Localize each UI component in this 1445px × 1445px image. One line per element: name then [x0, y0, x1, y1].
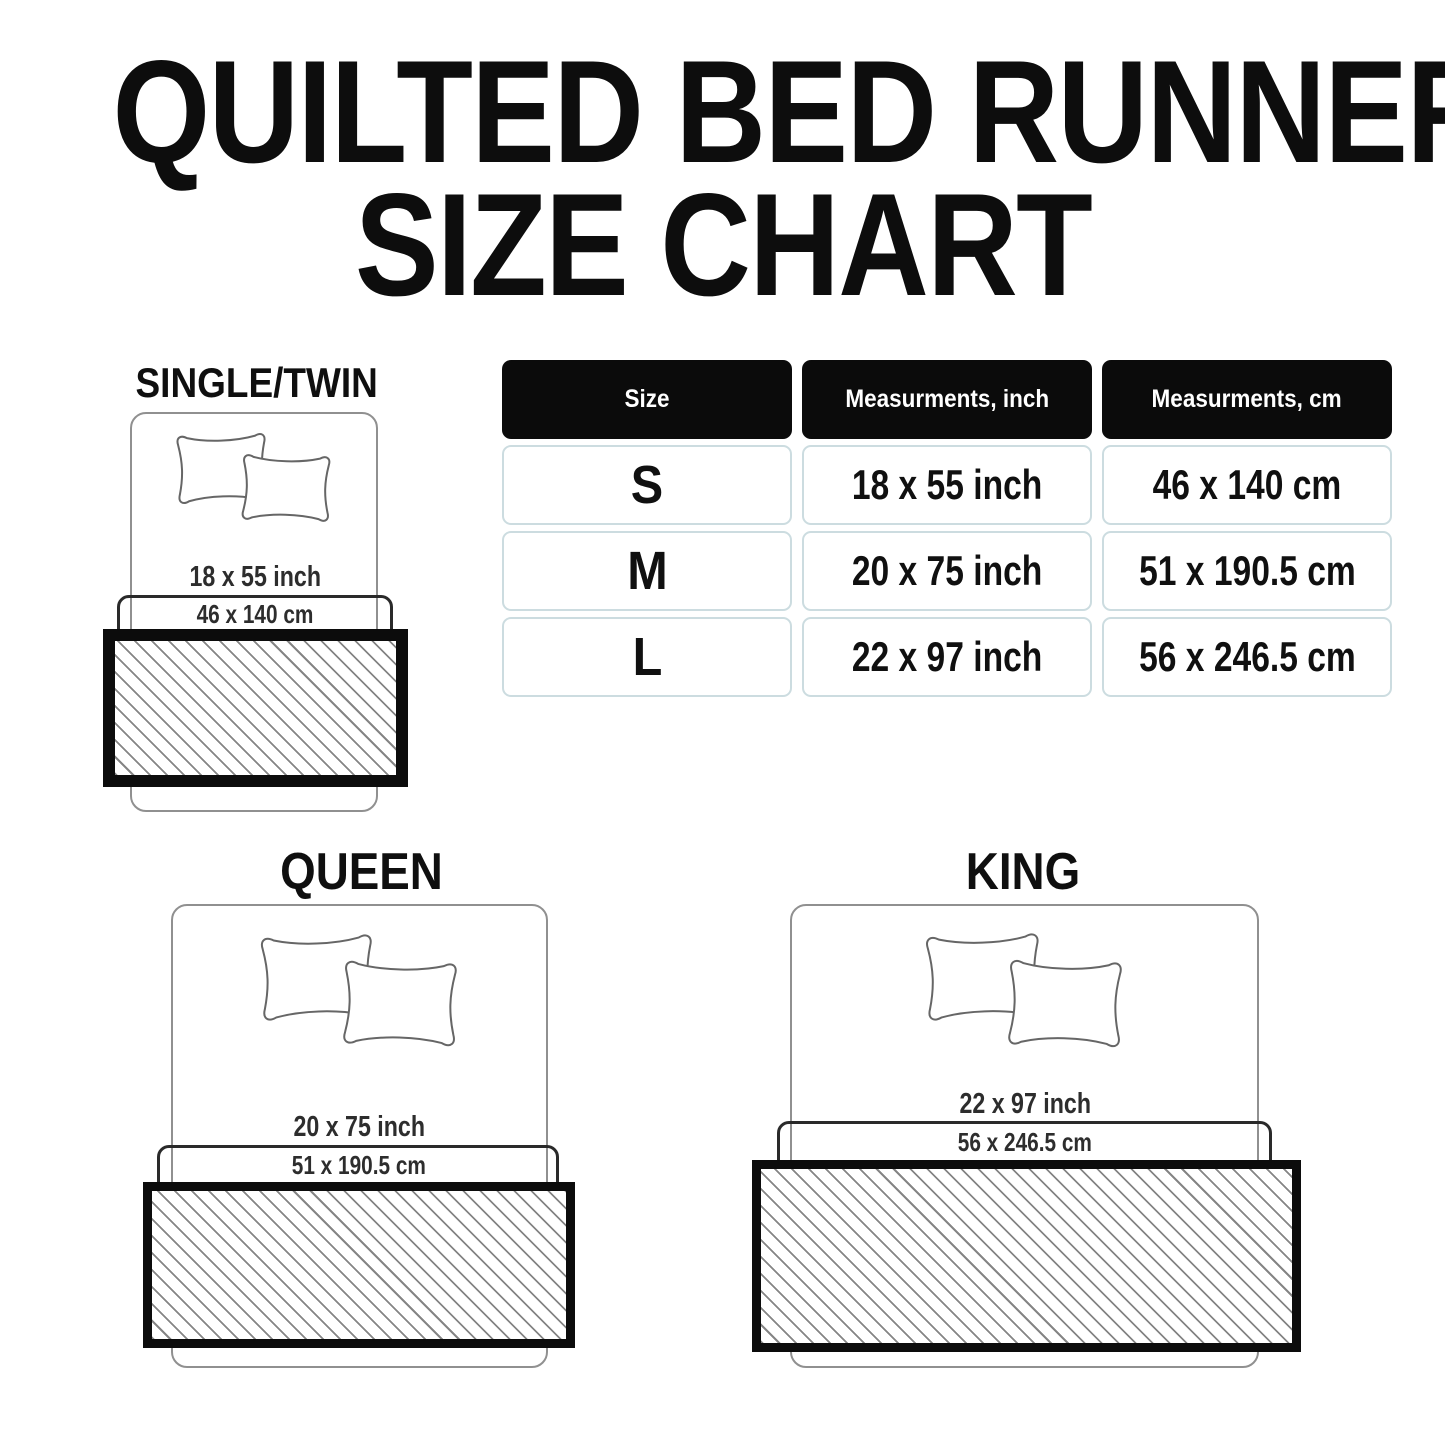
king-label: KING [823, 845, 1223, 900]
table-cell-row3-size-text: L [632, 626, 662, 688]
single-twin-label: SINGLE/TWIN [57, 361, 457, 405]
table-header-size: Size [502, 360, 792, 439]
pillow-icon [1001, 956, 1129, 1050]
table-cell-row3-cm-text: 56 x 246.5 cm [1139, 633, 1356, 681]
table-cell-row1-size: S [502, 445, 792, 525]
queen-cm-dimension: 51 x 190.5 cm [209, 1143, 509, 1187]
table-cell-row1-cm-text: 46 x 140 cm [1153, 461, 1342, 509]
table-cell-row2-size-text: M [627, 540, 667, 602]
pillow-icon [336, 957, 464, 1049]
table-header-cm: Measurments, cm [1102, 360, 1392, 439]
king-label-text: KING [966, 845, 1080, 900]
queen-runner-hatch [143, 1182, 575, 1348]
table-cell-row3-inch: 22 x 97 inch [802, 617, 1092, 697]
queen-label-text: QUEEN [280, 845, 443, 900]
table-header-inch: Measurments, inch [802, 360, 1092, 439]
table-header-size-text: Size [624, 385, 669, 414]
single-twin-runner-hatch [103, 629, 408, 787]
king-runner-hatch [752, 1160, 1301, 1352]
page-title-line-2-text: SIZE CHART [354, 170, 1090, 320]
table-cell-row2-cm-text: 51 x 190.5 cm [1139, 547, 1356, 595]
queen-cm-text: 51 x 190.5 cm [292, 1143, 426, 1187]
table-cell-row3-inch-text: 22 x 97 inch [852, 633, 1043, 681]
table-cell-row2-cm: 51 x 190.5 cm [1102, 531, 1392, 611]
table-cell-row2-size: M [502, 531, 792, 611]
king-cm-text: 56 x 246.5 cm [958, 1120, 1092, 1164]
size-table: Size Measurments, inch Measurments, cm S… [502, 360, 1392, 697]
table-cell-row2-inch-text: 20 x 75 inch [852, 547, 1043, 595]
single-twin-cm-text: 46 x 140 cm [197, 592, 314, 636]
table-cell-row1-size-text: S [631, 454, 663, 516]
table-header-cm-text: Measurments, cm [1152, 385, 1342, 414]
table-cell-row3-cm: 56 x 246.5 cm [1102, 617, 1392, 697]
queen-label: QUEEN [161, 845, 561, 900]
king-cm-dimension: 56 x 246.5 cm [875, 1120, 1175, 1164]
table-cell-row1-inch-text: 18 x 55 inch [852, 461, 1043, 509]
table-cell-row1-cm: 46 x 140 cm [1102, 445, 1392, 525]
table-cell-row3-size: L [502, 617, 792, 697]
table-cell-row1-inch: 18 x 55 inch [802, 445, 1092, 525]
single-twin-cm-dimension: 46 x 140 cm [105, 592, 405, 636]
table-cell-row2-inch: 20 x 75 inch [802, 531, 1092, 611]
single-twin-label-text: SINGLE/TWIN [136, 361, 378, 405]
pillow-icon [236, 452, 336, 525]
bed-runner-size-chart: QUILTED BED RUNNER SIZE CHART Size Measu… [0, 0, 1445, 1445]
page-title-line-2: SIZE CHART [0, 170, 1445, 320]
table-header-inch-text: Measurments, inch [845, 385, 1049, 414]
